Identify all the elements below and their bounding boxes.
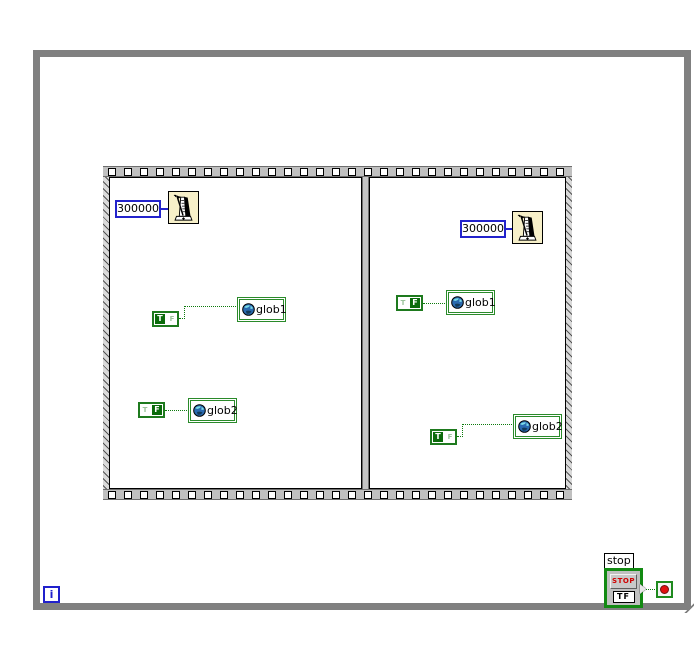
numeric-constant[interactable]: 300000 xyxy=(460,220,506,238)
global-variable-label: glob1 xyxy=(465,297,496,308)
sequence-sprocket xyxy=(364,168,372,176)
sequence-sprocket xyxy=(316,168,324,176)
boolean-constant[interactable]: T F xyxy=(152,311,179,327)
metronome-icon xyxy=(513,212,542,243)
sequence-sprocket xyxy=(236,491,244,499)
sequence-sprocket xyxy=(460,491,468,499)
sequence-sprocket xyxy=(508,491,516,499)
sequence-sprocket xyxy=(268,168,276,176)
sequence-sprocket xyxy=(188,491,196,499)
sequence-frame-1[interactable] xyxy=(109,177,362,489)
globe-icon xyxy=(193,404,206,417)
sequence-sprocket xyxy=(108,491,116,499)
sequence-sprocket xyxy=(380,168,388,176)
sequence-sprocket xyxy=(428,168,436,176)
global-variable-frame: glob1 xyxy=(239,299,284,320)
boolean-wire[interactable] xyxy=(462,424,463,437)
sequence-sprocket xyxy=(300,491,308,499)
sequence-frame-divider[interactable] xyxy=(362,177,369,489)
sequence-sprocket xyxy=(140,168,148,176)
sequence-sprocket xyxy=(492,168,500,176)
sequence-sprocket xyxy=(396,491,404,499)
sequence-border-bottom[interactable] xyxy=(103,489,572,500)
boolean-wire[interactable] xyxy=(165,410,189,411)
sequence-sprocket xyxy=(252,168,260,176)
sequence-sprocket xyxy=(556,491,564,499)
sequence-sprocket xyxy=(284,491,292,499)
sequence-sprocket xyxy=(460,168,468,176)
sequence-sprocket xyxy=(492,491,500,499)
false-letter: F xyxy=(446,433,454,441)
sequence-sprocket xyxy=(108,168,116,176)
iteration-terminal[interactable]: i xyxy=(43,586,60,603)
global-variable-label: glob2 xyxy=(207,405,238,416)
metronome-icon xyxy=(169,192,198,223)
boolean-constant[interactable]: T F xyxy=(138,402,165,418)
sequence-sprocket xyxy=(508,168,516,176)
false-letter: F xyxy=(410,298,420,308)
sequence-sprocket xyxy=(124,168,132,176)
false-letter: F xyxy=(168,315,176,323)
boolean-wire[interactable] xyxy=(184,306,185,319)
true-letter: T xyxy=(141,406,149,414)
globe-icon xyxy=(518,420,531,433)
sequence-sprocket xyxy=(252,491,260,499)
sequence-sprocket xyxy=(188,168,196,176)
sequence-sprocket xyxy=(236,168,244,176)
sequence-sprocket xyxy=(412,491,420,499)
sequence-sprocket xyxy=(476,491,484,499)
sequence-sprocket xyxy=(172,491,180,499)
sequence-sprocket xyxy=(380,491,388,499)
global-variable-glob2[interactable]: glob2 xyxy=(188,398,237,423)
while-loop-corner xyxy=(678,597,694,613)
global-variable-glob2[interactable]: glob2 xyxy=(513,414,562,439)
sequence-sprocket xyxy=(204,491,212,499)
boolean-wire[interactable] xyxy=(462,424,514,425)
sequence-sprocket xyxy=(444,491,452,499)
boolean-wire[interactable] xyxy=(184,306,238,307)
global-variable-glob1[interactable]: glob1 xyxy=(446,290,495,315)
sequence-sprocket xyxy=(364,491,372,499)
wait-ms-function[interactable] xyxy=(512,211,543,244)
numeric-constant[interactable]: 300000 xyxy=(115,200,161,218)
true-letter: T xyxy=(155,314,165,324)
sequence-sprocket xyxy=(332,168,340,176)
stop-button-terminal[interactable]: STOP TF xyxy=(604,568,643,608)
globe-icon xyxy=(451,296,464,309)
sequence-sprocket xyxy=(540,491,548,499)
sequence-sprocket xyxy=(524,491,532,499)
sequence-sprocket xyxy=(396,168,404,176)
sequence-sprocket xyxy=(124,491,132,499)
sequence-sprocket xyxy=(444,168,452,176)
boolean-constant[interactable]: T F xyxy=(430,429,457,445)
sequence-sprocket xyxy=(156,491,164,499)
global-variable-frame: glob2 xyxy=(190,400,235,421)
stop-button-face: STOP xyxy=(610,574,637,589)
sequence-sprocket xyxy=(428,491,436,499)
sequence-sprocket xyxy=(540,168,548,176)
globe-icon xyxy=(242,303,255,316)
global-variable-glob1[interactable]: glob1 xyxy=(237,297,286,322)
sequence-sprocket xyxy=(348,168,356,176)
sequence-sprocket xyxy=(140,491,148,499)
sequence-sprocket xyxy=(268,491,276,499)
global-variable-frame: glob2 xyxy=(515,416,560,437)
sequence-sprocket xyxy=(556,168,564,176)
loop-condition-terminal[interactable] xyxy=(656,581,673,598)
global-variable-label: glob2 xyxy=(532,421,563,432)
sequence-sprocket xyxy=(476,168,484,176)
sequence-sprocket xyxy=(284,168,292,176)
true-letter: T xyxy=(399,299,407,307)
sequence-sprocket xyxy=(172,168,180,176)
sequence-sprocket xyxy=(316,491,324,499)
global-variable-label: glob1 xyxy=(256,304,287,315)
stop-control-label[interactable]: stop xyxy=(604,553,634,569)
sequence-sprocket xyxy=(204,168,212,176)
global-variable-frame: glob1 xyxy=(448,292,493,313)
true-letter: T xyxy=(433,432,443,442)
stop-sign-icon xyxy=(660,585,669,594)
boolean-constant[interactable]: T F xyxy=(396,295,423,311)
block-diagram: 300000 T F glob1 T xyxy=(0,0,697,650)
sequence-border-top[interactable] xyxy=(103,166,572,177)
sequence-border-right[interactable] xyxy=(566,177,572,489)
sequence-sprocket xyxy=(220,491,228,499)
sequence-sprocket xyxy=(156,168,164,176)
sequence-sprocket xyxy=(412,168,420,176)
boolean-datatype-badge: TF xyxy=(613,591,635,603)
wait-ms-function[interactable] xyxy=(168,191,199,224)
sequence-sprocket xyxy=(524,168,532,176)
boolean-wire[interactable] xyxy=(423,303,447,304)
sequence-sprocket xyxy=(348,491,356,499)
sequence-sprocket xyxy=(220,168,228,176)
false-letter: F xyxy=(152,405,162,415)
sequence-sprocket xyxy=(332,491,340,499)
sequence-sprocket xyxy=(300,168,308,176)
